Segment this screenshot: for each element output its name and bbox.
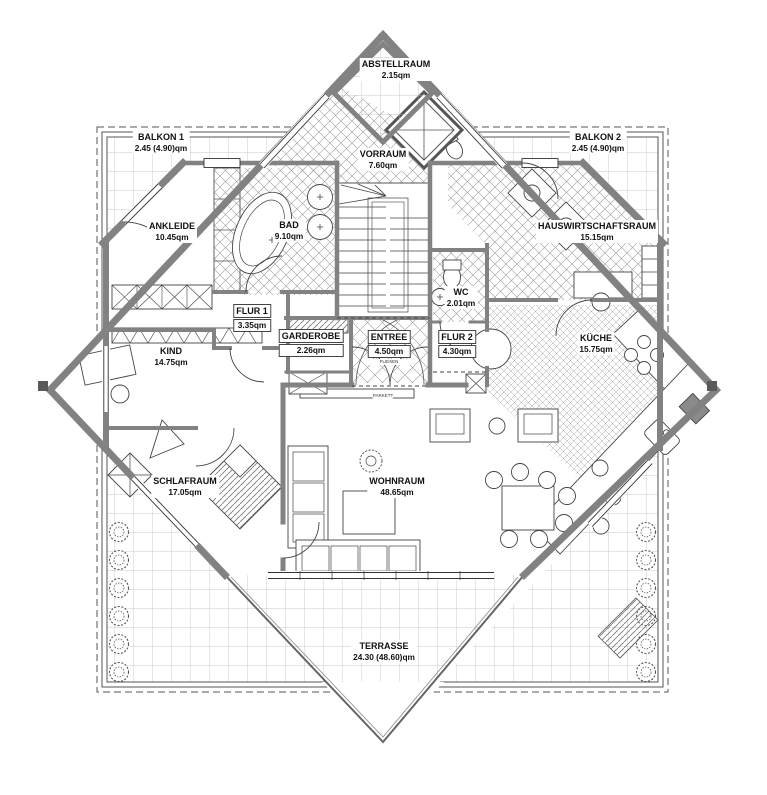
floor-plan-page: ABSTELLRAUM2.15qm BALKON 12.45 (4.90)qm … bbox=[0, 0, 767, 795]
stool bbox=[592, 460, 608, 476]
room-label-terrasse: TERRASSE24.30 (48.60)qm bbox=[351, 640, 417, 663]
side-table bbox=[489, 418, 505, 434]
chair bbox=[501, 531, 518, 548]
room-label-entree: ENTREE4.50qmFLIESEN bbox=[368, 329, 411, 365]
room-label-balkon1: BALKON 12.45 (4.90)qm bbox=[133, 131, 190, 154]
chair bbox=[111, 385, 129, 403]
plant-icon bbox=[360, 450, 382, 472]
room-label-hauswirtschaftsraum: HAUSWIRTSCHAFTSRAUM15.15qm bbox=[536, 220, 658, 243]
room-label-garderobe: GARDEROBE2.26qm bbox=[279, 328, 344, 358]
room-label-abstellraum: ABSTELLRAUM2.15qm bbox=[360, 58, 433, 81]
chair bbox=[539, 472, 556, 489]
chair bbox=[486, 472, 503, 489]
chair bbox=[531, 531, 548, 548]
dining-table bbox=[502, 486, 554, 530]
room-label-flur2: FLUR 24.30qm bbox=[438, 329, 476, 359]
chair bbox=[559, 488, 576, 505]
room-label-flur1: FLUR 13.35qm bbox=[233, 303, 271, 333]
room-label-kind: KIND14.75qm bbox=[152, 345, 189, 368]
chair bbox=[512, 464, 529, 481]
room-label-ankleide: ANKLEIDE10.45qm bbox=[147, 220, 197, 243]
burner bbox=[638, 362, 651, 375]
room-label-vorraum: VORRAUM7.60qm bbox=[358, 148, 409, 171]
room-label-kueche: KÜCHE15.75qm bbox=[577, 332, 614, 355]
room-label-wc: WC2.01qm bbox=[445, 286, 478, 309]
entree-floor-note: FLIESEN bbox=[368, 359, 411, 365]
round-table bbox=[471, 329, 511, 369]
wohnraum-floor-note: PARKETT bbox=[373, 393, 393, 399]
toilet-icon bbox=[443, 260, 461, 288]
room-label-wohnraum: WOHNRAUM48.65qm bbox=[367, 475, 427, 498]
room-label-schlafraum: SCHLAFRAUM17.05qm bbox=[151, 475, 219, 498]
burner bbox=[625, 349, 638, 362]
room-label-bad: BAD9.10qm bbox=[273, 219, 306, 242]
burner bbox=[638, 336, 651, 349]
staircase bbox=[337, 183, 430, 318]
room-label-balkon2: BALKON 22.45 (4.90)qm bbox=[570, 131, 627, 154]
